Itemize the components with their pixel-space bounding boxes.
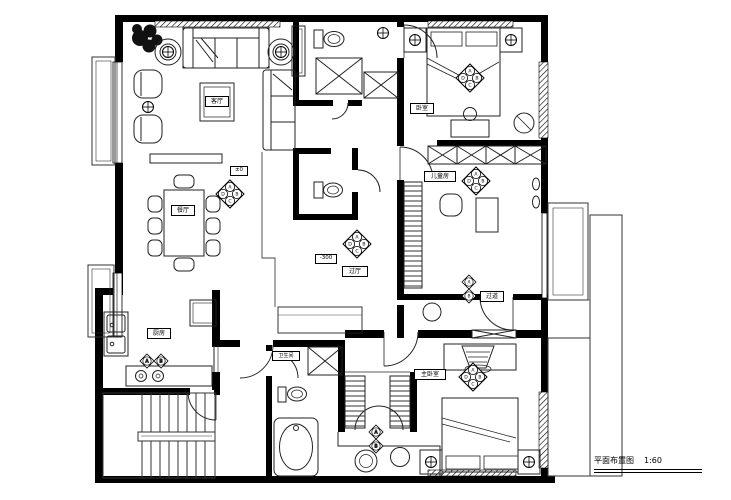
- stove: [126, 366, 212, 386]
- living-room: [132, 24, 295, 163]
- bathtub: [274, 418, 318, 476]
- level-marker-minus300: -300: [315, 254, 337, 264]
- handrail: [138, 432, 215, 441]
- sofa: [183, 28, 269, 68]
- bath-block: [292, 26, 398, 198]
- room-label-dining: 餐厅: [171, 205, 195, 216]
- room-label-master: 主卧室: [414, 369, 446, 380]
- room-label-corridor: 过道: [480, 291, 504, 302]
- drawing-scale: 1:60: [644, 456, 662, 465]
- plan-linework: A B C D A B: [0, 0, 731, 500]
- room-label-living: 客厅: [205, 96, 229, 107]
- door-arc: [332, 103, 348, 119]
- side-table-left: [155, 39, 181, 65]
- wardrobe-xbox: [316, 58, 398, 98]
- desk: [476, 198, 498, 232]
- title-block: 平面布置图 1:60: [594, 455, 714, 473]
- armchair: [134, 115, 162, 143]
- room-label-bedroom: 卧室: [410, 103, 434, 114]
- staircase: [103, 392, 216, 478]
- tv-bench: [150, 154, 222, 163]
- tv-unit: [444, 344, 516, 373]
- dining-table: [164, 190, 204, 256]
- toilet: [278, 387, 307, 402]
- ceiling-light: [378, 28, 389, 39]
- level-marker-zero: ±0: [230, 166, 248, 176]
- bookshelf: [404, 182, 422, 288]
- room-label-bath: 卫生间: [272, 351, 300, 361]
- corner-chair: [514, 113, 534, 133]
- stool: [423, 303, 441, 321]
- toilet: [314, 30, 344, 48]
- floor-plan: A B C D A B: [0, 0, 731, 500]
- wall-sconce: [533, 178, 540, 190]
- side-table-right: [268, 39, 294, 65]
- room-label-hall: 过厅: [342, 266, 368, 277]
- walkin-closet: [345, 372, 410, 430]
- closet-row: [428, 146, 546, 164]
- floor-lamp: [143, 102, 154, 113]
- entry-door-arc: [188, 392, 216, 420]
- room-label-kitchen: 厨房: [147, 328, 171, 339]
- window-seat-xbox: [472, 330, 516, 338]
- dining-room: [148, 175, 220, 271]
- drawing-title: 平面布置图: [594, 455, 634, 466]
- title-underline: [594, 469, 702, 470]
- vanity: [338, 432, 440, 476]
- desk-chair: [440, 194, 462, 216]
- toilet: [314, 182, 343, 198]
- plant: [132, 24, 163, 53]
- wall-sconce: [533, 196, 540, 208]
- dresser: [451, 108, 489, 138]
- title-underline: [594, 472, 702, 473]
- wardrobe-xbox: [308, 347, 342, 375]
- dining-chairs: [148, 175, 220, 271]
- door-arc: [358, 170, 380, 192]
- room-label-kids: 儿童房: [424, 171, 456, 182]
- armchair: [134, 70, 162, 98]
- master-bed: [442, 398, 518, 472]
- chaise-sofa: [263, 70, 295, 150]
